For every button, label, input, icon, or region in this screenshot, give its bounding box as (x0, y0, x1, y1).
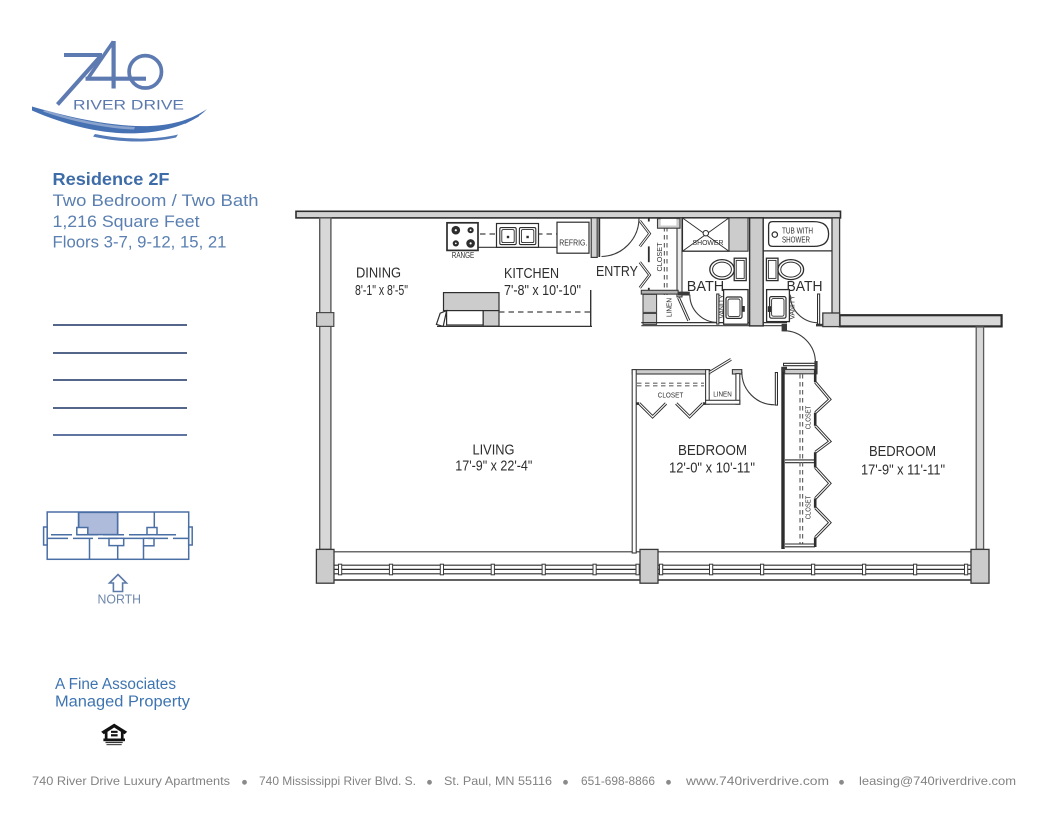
svg-text:CLOSET: CLOSET (804, 405, 813, 429)
svg-text:CLOSET: CLOSET (655, 242, 664, 272)
svg-text:17'-9" x 22'-4": 17'-9" x 22'-4" (455, 458, 532, 475)
svg-text:CLOSET: CLOSET (658, 390, 684, 399)
svg-text:www.740riverdrive.com: www.740riverdrive.com (685, 775, 829, 788)
svg-text:BATH: BATH (787, 279, 823, 295)
svg-text:Residence 2F: Residence 2F (53, 169, 170, 189)
svg-text:Floors 3-7, 9-12, 15, 21: Floors 3-7, 9-12, 15, 21 (53, 233, 227, 252)
svg-text:651-698-8866: 651-698-8866 (581, 775, 655, 788)
svg-text:740 Mississippi River Blvd. S.: 740 Mississippi River Blvd. S. (259, 775, 416, 788)
svg-text:LINEN: LINEN (713, 390, 732, 399)
svg-text:A Fine Associates: A Fine Associates (55, 676, 176, 693)
svg-text:Managed Property: Managed Property (55, 694, 190, 711)
svg-text:RIVER DRIVE: RIVER DRIVE (73, 97, 184, 113)
svg-text:BATH: BATH (687, 279, 725, 295)
svg-text:SHOWER: SHOWER (693, 238, 724, 247)
svg-text:1,216 Square Feet: 1,216 Square Feet (53, 212, 200, 231)
svg-text:St. Paul, MN 55116: St. Paul, MN 55116 (444, 775, 552, 788)
svg-text:12'-0" x 10'-11": 12'-0" x 10'-11" (669, 460, 755, 477)
svg-text:LIVING: LIVING (473, 441, 515, 458)
svg-text:VANITY: VANITY (719, 294, 726, 318)
svg-text:SHOWER: SHOWER (782, 235, 810, 244)
svg-text:BEDROOM: BEDROOM (869, 443, 936, 460)
svg-text:17'-9" x 11'-11": 17'-9" x 11'-11" (861, 462, 945, 479)
svg-text:RANGE: RANGE (452, 251, 475, 260)
svg-text:leasing@740riverdrive.com: leasing@740riverdrive.com (859, 775, 1016, 788)
svg-text:KITCHEN: KITCHEN (504, 265, 559, 282)
svg-text:ENTRY: ENTRY (596, 263, 638, 280)
svg-text:LINEN: LINEN (665, 298, 674, 317)
svg-text:8'-1" x 8'-5": 8'-1" x 8'-5" (355, 282, 408, 299)
svg-text:BEDROOM: BEDROOM (678, 442, 747, 459)
svg-text:NORTH: NORTH (98, 593, 142, 607)
svg-text:DINING: DINING (356, 264, 401, 281)
svg-text:CLOSET: CLOSET (804, 495, 813, 519)
svg-text:7'-8" x 10'-10": 7'-8" x 10'-10" (504, 282, 581, 299)
svg-text:REFRIG.: REFRIG. (559, 239, 587, 248)
svg-text:TUB WITH: TUB WITH (782, 227, 813, 236)
svg-text:740 River Drive Luxury Apartme: 740 River Drive Luxury Apartments (32, 775, 230, 788)
svg-text:Two Bedroom / Two Bath: Two Bedroom / Two Bath (53, 191, 259, 210)
